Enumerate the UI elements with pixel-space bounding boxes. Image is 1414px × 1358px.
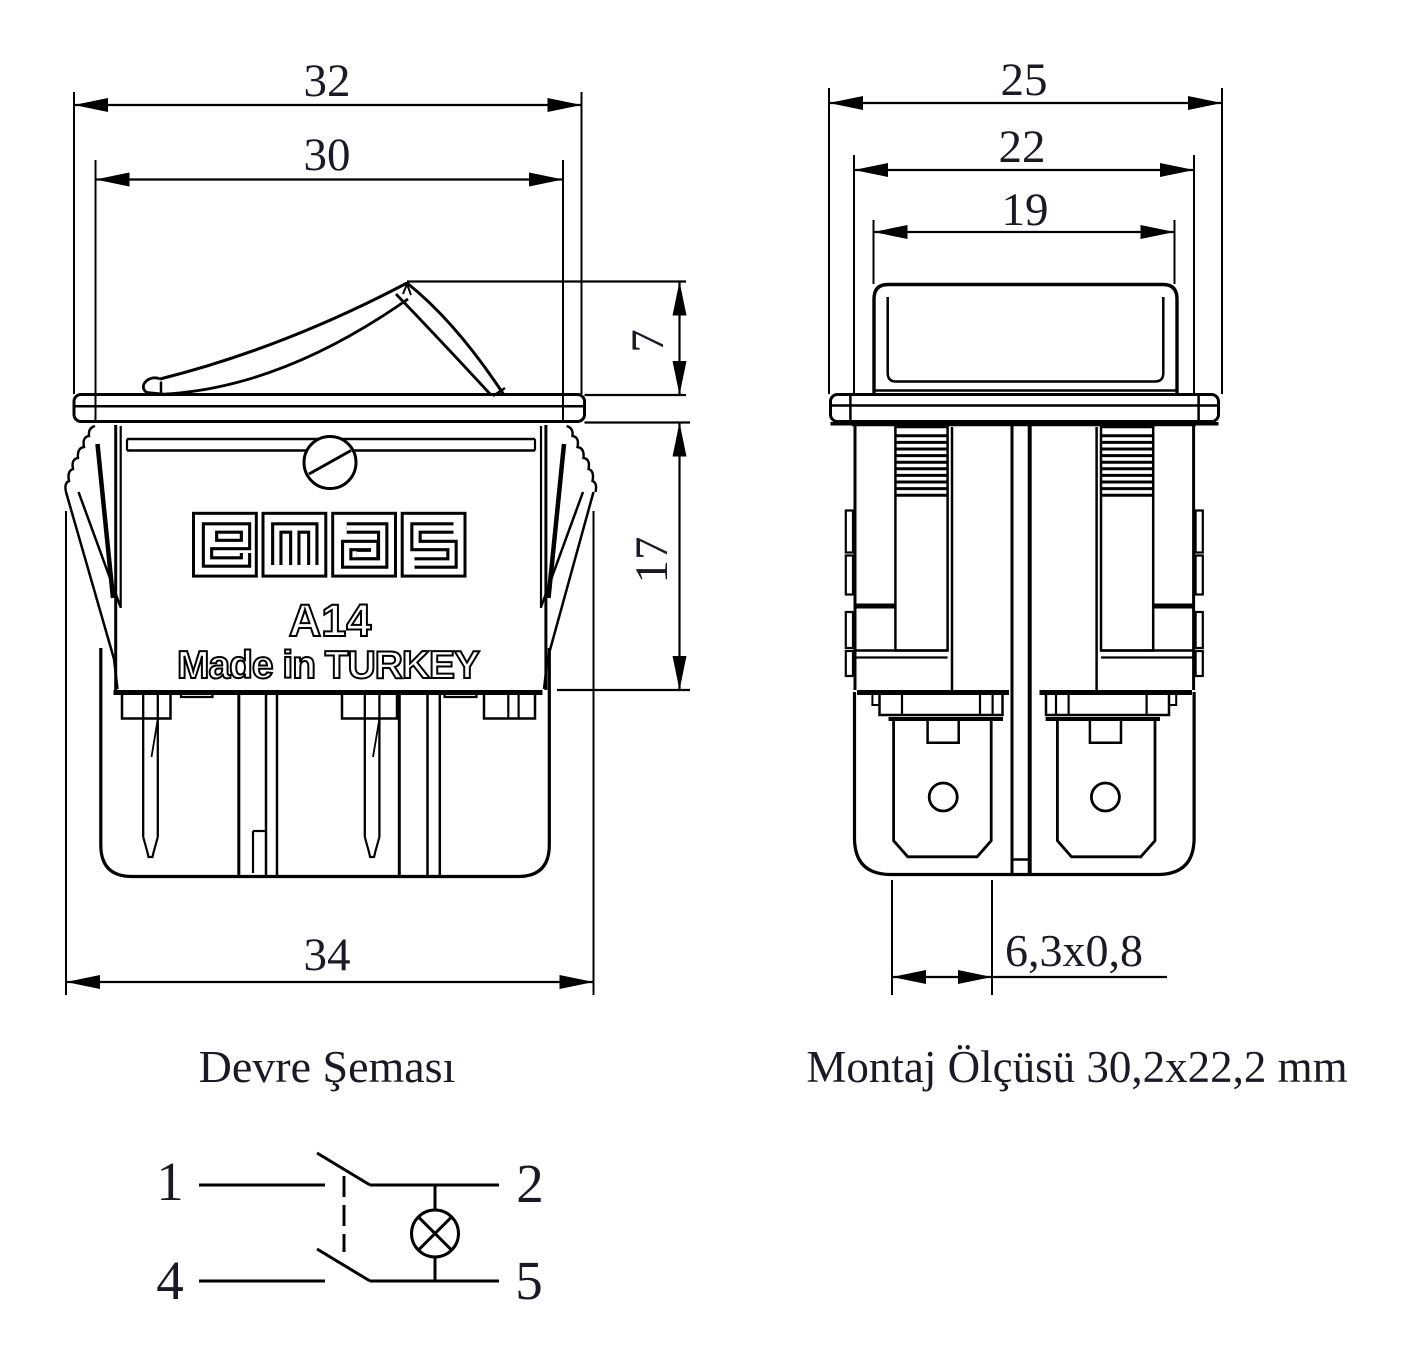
svg-text:22: 22 <box>999 121 1046 173</box>
svg-text:34: 34 <box>304 929 351 981</box>
svg-text:A14: A14 <box>289 595 372 646</box>
svg-text:1: 1 <box>156 1151 184 1212</box>
svg-text:4: 4 <box>156 1250 184 1311</box>
svg-text:7: 7 <box>622 329 674 353</box>
svg-text:Made in TURKEY: Made in TURKEY <box>177 644 480 687</box>
svg-text:6,3x0,8: 6,3x0,8 <box>1005 925 1143 976</box>
svg-text:25: 25 <box>1001 54 1048 106</box>
svg-text:19: 19 <box>1002 184 1049 236</box>
svg-text:2: 2 <box>516 1153 544 1214</box>
svg-text:30: 30 <box>304 129 351 181</box>
svg-text:Montaj Ölçüsü 30,2x22,2 mm: Montaj Ölçüsü 30,2x22,2 mm <box>806 1042 1347 1092</box>
svg-text:17: 17 <box>626 537 678 584</box>
svg-text:Devre Şeması: Devre Şeması <box>199 1041 456 1092</box>
svg-text:32: 32 <box>304 55 351 107</box>
svg-text:5: 5 <box>515 1250 543 1311</box>
